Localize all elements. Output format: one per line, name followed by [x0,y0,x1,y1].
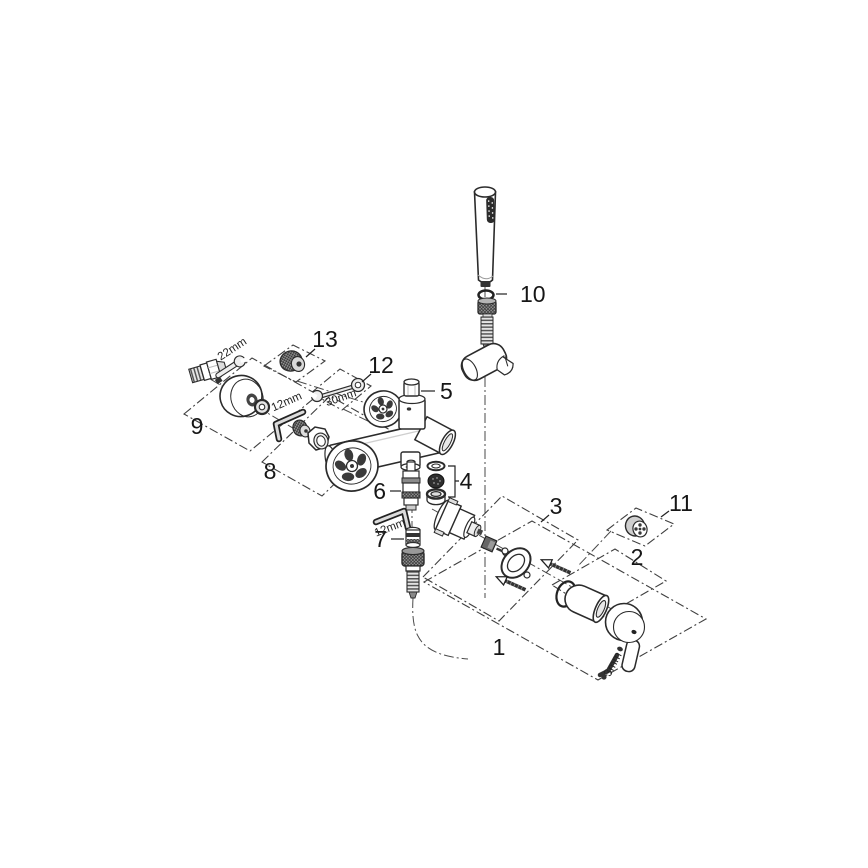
callout-6: 6 [373,478,386,504]
hand-shower [475,187,496,287]
shower-holder [458,339,517,392]
callout-12: 12 [368,352,394,378]
handle-adapter-11 [623,514,649,539]
diverter-knob-5 [404,379,419,396]
cap-nut-8 [308,427,330,451]
hose-curve-line [413,598,468,659]
top-mount [399,395,425,430]
callout-9: 9 [191,413,204,439]
label-3mm: 3mm [602,650,625,678]
mounting-screw-upper [539,556,572,577]
leader-11 [661,511,669,517]
square-nut-3 [481,536,497,552]
leader-3 [541,515,549,522]
callout-10: 10 [520,281,546,307]
exploded-parts-diagram: 10 5 6 7 4 9 8 13 12 3 2 11 1 22mm 12mm … [0,0,868,868]
hose-connector [478,298,496,350]
callout-11: 11 [669,490,693,516]
callout-4: 4 [460,468,473,494]
aerator-set-4 [427,462,459,505]
cap-part-axis-line [578,531,611,566]
callout-5: 5 [440,378,453,404]
handle-inlet-tip [481,281,491,287]
callout-3: 3 [550,493,563,519]
tool-labels: 22mm 12mm 30mm 12mm 3mm [216,336,625,679]
escutcheon-cap-2 [560,580,612,624]
callout-8: 8 [264,458,277,484]
adapter-13 [278,348,307,373]
check-valve-7 [406,527,420,547]
callouts: 10 5 6 7 4 9 8 13 12 3 2 11 1 [191,281,693,660]
callout-13: 13 [312,326,338,352]
union-nut-9 [255,400,269,414]
callout-1: 1 [493,634,506,660]
bracket-4 [448,466,459,497]
grub-screw [616,646,623,653]
callout-2: 2 [631,544,644,570]
mount-hole [407,407,411,410]
spray-face-texture [486,197,495,223]
mousseur-insert [428,474,444,488]
diagram-canvas: 10 5 6 7 4 9 8 13 12 3 2 11 1 22mm 12mm … [0,0,868,868]
hose-nipple [402,547,424,598]
